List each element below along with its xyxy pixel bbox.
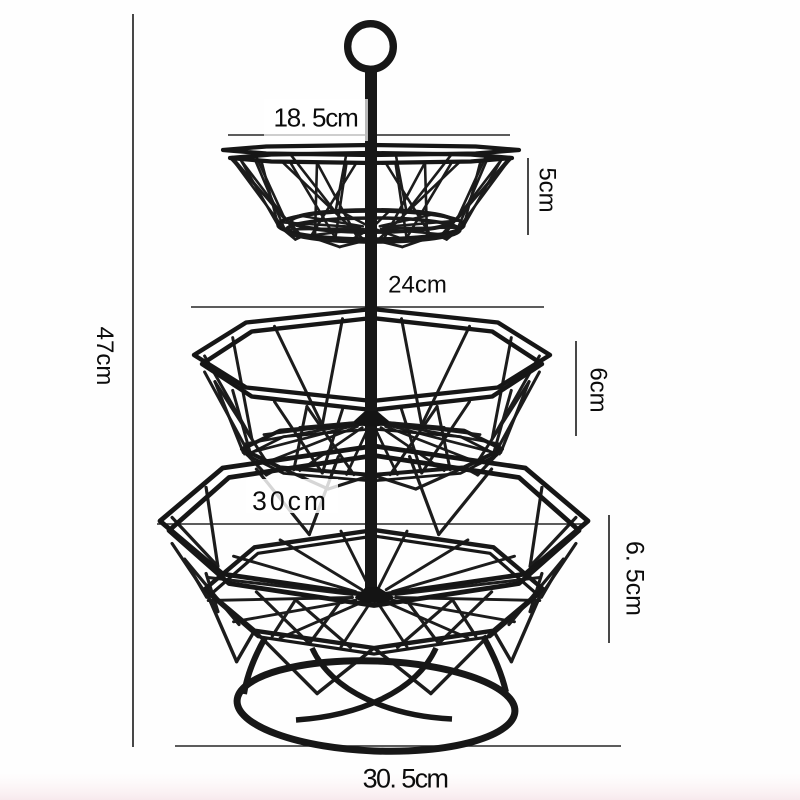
svg-text:5cm: 5cm: [534, 167, 561, 212]
svg-text:6. 5cm: 6. 5cm: [621, 541, 649, 616]
svg-text:30. 5cm: 30. 5cm: [363, 764, 448, 794]
svg-text:30cm: 30cm: [252, 486, 329, 516]
svg-text:24cm: 24cm: [388, 272, 447, 299]
svg-text:18. 5cm: 18. 5cm: [273, 103, 357, 133]
svg-text:47cm: 47cm: [91, 327, 118, 386]
svg-text:6cm: 6cm: [585, 367, 612, 412]
